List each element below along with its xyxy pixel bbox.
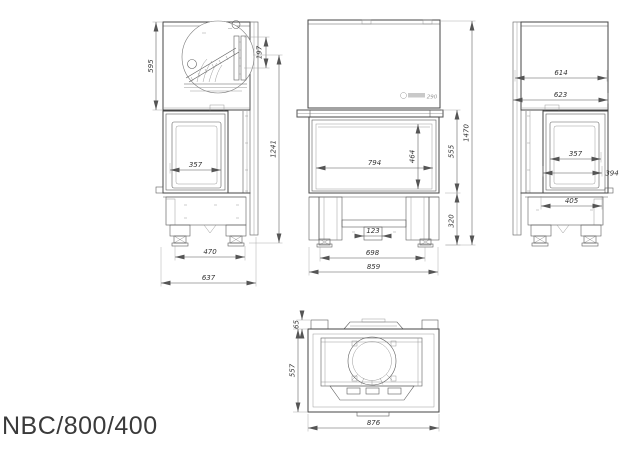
dim-label-557: 557	[289, 363, 297, 377]
dim-label-197: 197	[256, 45, 264, 59]
front-vent-slot-2	[423, 20, 432, 24]
dim-357-right-glass-width: 357	[550, 150, 601, 163]
brand-logo-icon	[401, 93, 407, 99]
dim-label-123: 123	[366, 227, 379, 235]
left-detail-circle	[182, 21, 254, 94]
dim-1470-overall-height: 1470	[441, 21, 476, 245]
right-side-view: 614 623 357 394 405	[513, 22, 619, 246]
brand-logo-wordmark	[408, 93, 425, 98]
front-view: 290	[297, 20, 476, 276]
dim-label-698: 698	[366, 249, 380, 257]
dim-label-394: 394	[605, 170, 618, 178]
left-body-panel-lines	[243, 111, 248, 193]
plan-body-inner	[313, 334, 434, 407]
dim-label-595: 595	[147, 59, 155, 73]
dim-405-base-depth: 405	[541, 196, 602, 210]
dim-label-614: 614	[554, 69, 567, 77]
dim-label-65: 65	[293, 320, 301, 329]
drawing-canvas: 595 197 1241 357 470 637	[0, 0, 624, 460]
plan-top-block-left	[311, 320, 328, 329]
dim-320-base-height: 320	[445, 193, 461, 245]
dim-label-859: 859	[367, 263, 381, 271]
dim-label-794: 794	[368, 159, 381, 167]
left-door-frame	[163, 111, 228, 193]
right-body-panel-lines	[526, 111, 530, 193]
front-door-frame-inner	[312, 120, 436, 191]
dim-557-body-depth: 557	[289, 329, 308, 412]
left-side-view: 595 197 1241 357 470 637	[147, 21, 283, 287]
brand-logo-number: 290	[427, 95, 438, 101]
plan-tray-slots	[347, 388, 401, 394]
dim-464-glass-height: 464	[409, 124, 419, 189]
dim-label-623: 623	[554, 91, 567, 99]
dim-label-357-right: 357	[569, 150, 583, 158]
dim-label-1470: 1470	[463, 124, 471, 142]
left-door-hinge	[156, 187, 163, 193]
plan-top-block-right	[422, 320, 438, 329]
dim-label-876: 876	[367, 419, 381, 427]
dim-470-feet-spacing: 470	[175, 246, 245, 261]
plan-bottom-tab	[357, 412, 389, 416]
left-side-glass-inner	[176, 126, 217, 184]
plan-flue-cap	[344, 322, 403, 329]
left-side-glass	[172, 122, 221, 188]
front-vent-slot-1	[362, 20, 371, 24]
plan-collar-spokes	[352, 374, 392, 385]
dim-label-357-left: 357	[189, 161, 203, 169]
dim-614-top-depth: 614	[515, 69, 607, 82]
dim-123-center-duct: 123	[357, 227, 390, 236]
plan-flue-collar-inner	[353, 342, 392, 381]
dim-label-320: 320	[448, 214, 456, 228]
left-base	[163, 193, 250, 246]
dim-623-overall-depth: 623	[513, 91, 608, 104]
plan-firebox	[321, 338, 422, 386]
dim-637-overall-depth: 637	[161, 237, 256, 287]
left-door-frame-inner	[166, 114, 225, 190]
front-door-frame	[309, 117, 439, 193]
dim-357-left-glass-width: 357	[170, 161, 221, 174]
dim-876-overall-width: 876	[308, 414, 439, 432]
technical-drawing-page: 595 197 1241 357 470 637	[0, 0, 624, 460]
dim-555-door-height: 555	[441, 110, 461, 193]
dim-label-637: 637	[202, 274, 216, 282]
model-title: NBC/800/400	[2, 412, 158, 440]
dim-394-glass-depth: 394	[543, 166, 619, 178]
dim-label-464: 464	[409, 150, 417, 163]
dim-595-top-box-height: 595	[147, 22, 162, 110]
dim-label-555: 555	[448, 144, 456, 158]
dim-698-feet-spacing: 698	[320, 247, 425, 262]
plan-flue-collar-outer	[348, 337, 396, 385]
dim-label-1241: 1241	[270, 140, 278, 158]
brand-logo: 290	[401, 93, 438, 101]
front-base	[309, 193, 439, 247]
plan-view: 65 557 876	[289, 313, 440, 432]
dim-label-405: 405	[565, 197, 579, 205]
right-door-hinge	[605, 188, 613, 193]
dim-65-collar-height: 65	[293, 313, 311, 337]
dim-label-470: 470	[203, 248, 217, 256]
